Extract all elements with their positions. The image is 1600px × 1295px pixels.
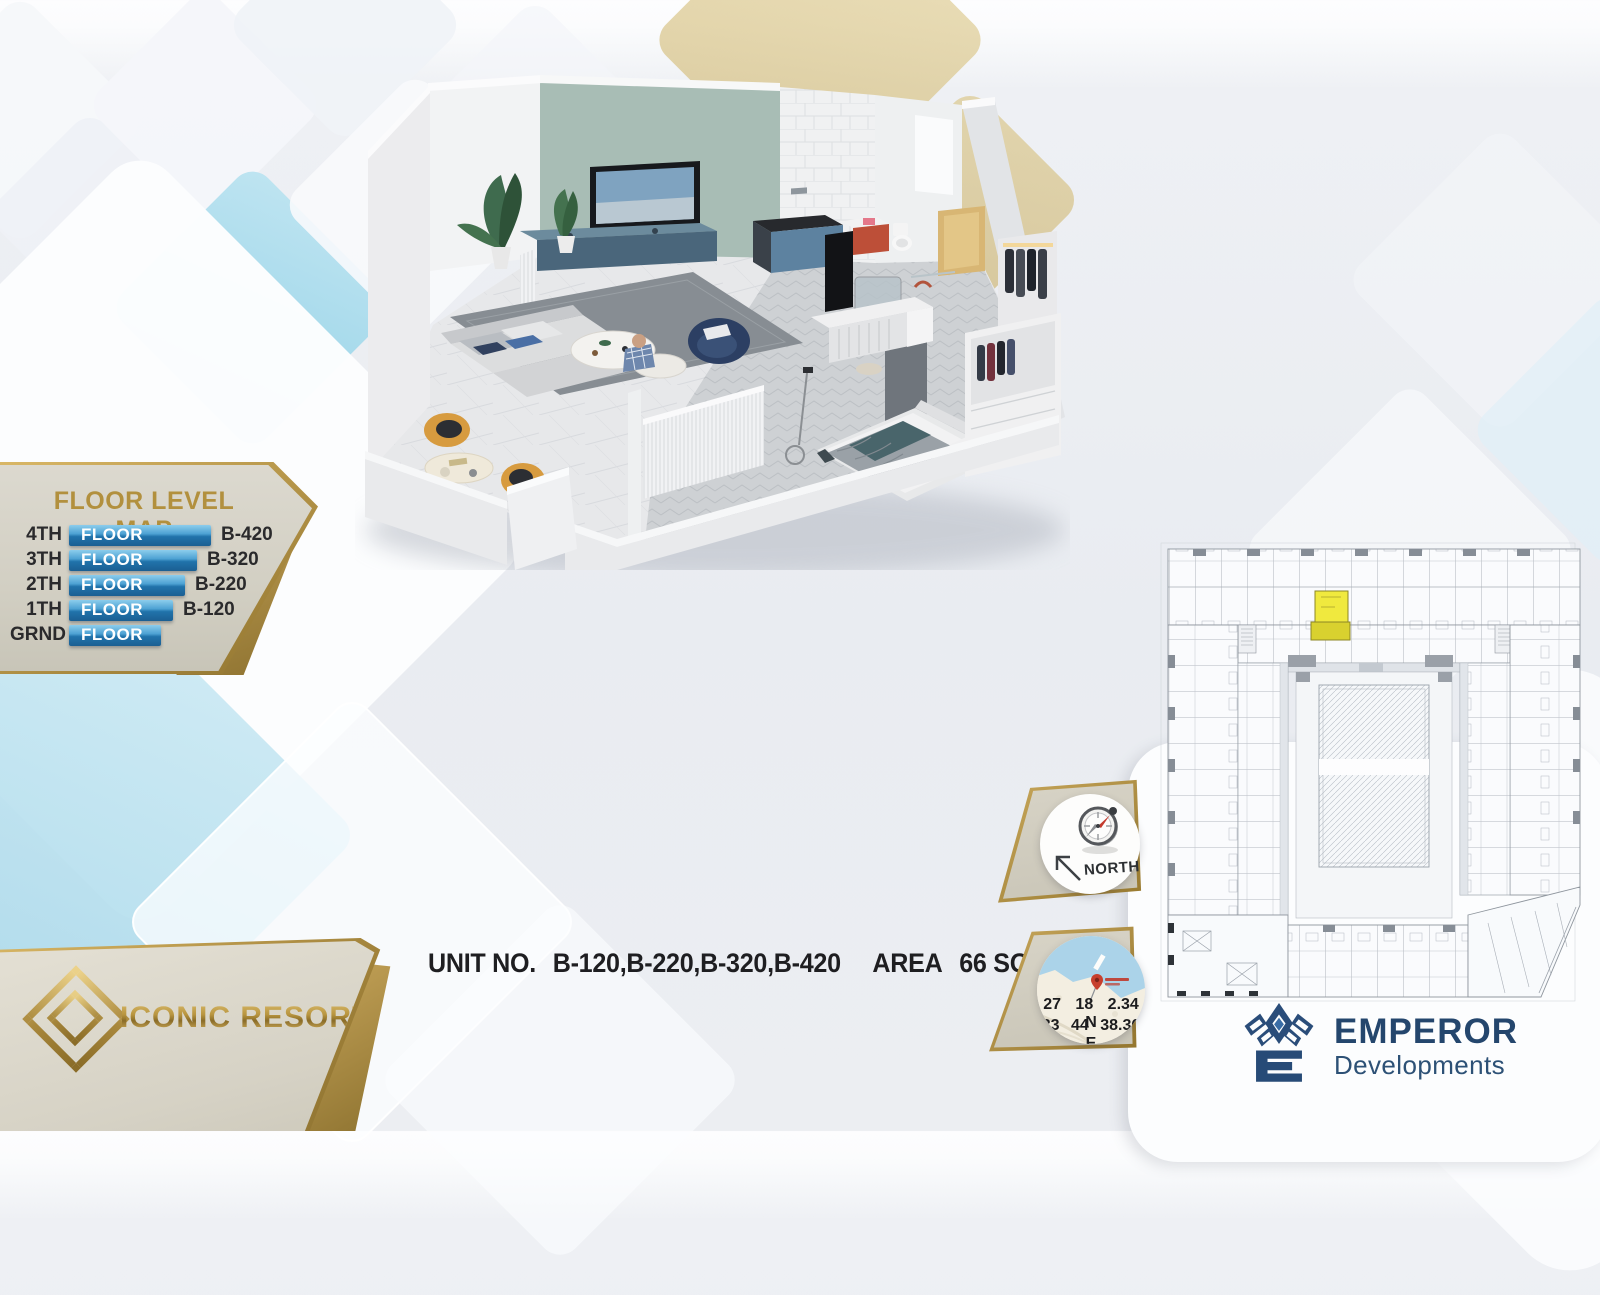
floor-bar: FLOOR xyxy=(69,600,173,621)
longitude-text: 33 44 38.36 E xyxy=(1037,1017,1145,1044)
plan-left-band xyxy=(1168,625,1288,915)
tv xyxy=(590,161,700,231)
area-label: AREA xyxy=(872,948,942,979)
floor-unit-label: B-420 xyxy=(221,524,273,546)
highlighted-unit xyxy=(1311,591,1350,640)
plan-garage-block xyxy=(1168,915,1288,997)
courtyard-pool xyxy=(1296,672,1452,918)
floor-row: 3TH FLOOR B-320 xyxy=(10,548,273,572)
site-floor-plan xyxy=(1143,535,1583,1005)
floor-row: 2TH FLOOR B-220 xyxy=(10,573,273,597)
crown-logo-icon xyxy=(1238,1000,1320,1088)
brand-name: ICONIC RESORT xyxy=(120,1001,371,1035)
developer-logo: EMPEROR Developments xyxy=(1238,1000,1518,1088)
floor-bar: FLOOR xyxy=(69,575,185,596)
north-arrow-icon xyxy=(1052,850,1086,884)
page: { "floor_level_map": { "title": "FLOOR L… xyxy=(0,0,1600,1131)
unit-info-line: UNIT NO.B-120,B-220,B-320,B-420AREA66 SQ… xyxy=(428,948,1050,979)
floor-bar: FLOOR xyxy=(69,550,197,571)
unit-no-label: UNIT NO. xyxy=(428,948,536,979)
floor-level-label: 1TH xyxy=(10,599,62,621)
developer-name: EMPEROR xyxy=(1334,1014,1518,1049)
location-badge-circle: 27 18 2.34 N 33 44 38.36 E xyxy=(1037,936,1145,1044)
floor-unit-label: B-320 xyxy=(207,549,259,571)
floor-level-label: 3TH xyxy=(10,549,62,571)
floor-row: GRND FLOOR xyxy=(10,623,273,647)
floor-row: 1TH FLOOR B-120 xyxy=(10,598,273,622)
floor-unit-label: B-220 xyxy=(195,574,247,596)
floor-level-label: 4TH xyxy=(10,524,62,546)
floor-level-label: GRND xyxy=(10,624,62,646)
north-badge-circle: NORTH xyxy=(1040,794,1140,894)
floor-bar: FLOOR xyxy=(69,625,161,646)
plan-right-band xyxy=(1460,625,1580,895)
armchair xyxy=(688,318,750,364)
floor-unit-label: B-120 xyxy=(183,599,235,621)
floor-level-label: 2TH xyxy=(10,574,62,596)
floor-level-rows: 4TH FLOOR B-420 3TH FLOOR B-320 2TH FLOO… xyxy=(10,523,273,648)
unit-numbers: B-120,B-220,B-320,B-420 xyxy=(553,948,841,979)
floor-row: 4TH FLOOR B-420 xyxy=(10,523,273,547)
plan-top-band xyxy=(1168,549,1580,625)
developer-division: Developments xyxy=(1334,1052,1518,1078)
floor-bar: FLOOR xyxy=(69,525,211,546)
apartment-3d-render xyxy=(355,25,1070,570)
